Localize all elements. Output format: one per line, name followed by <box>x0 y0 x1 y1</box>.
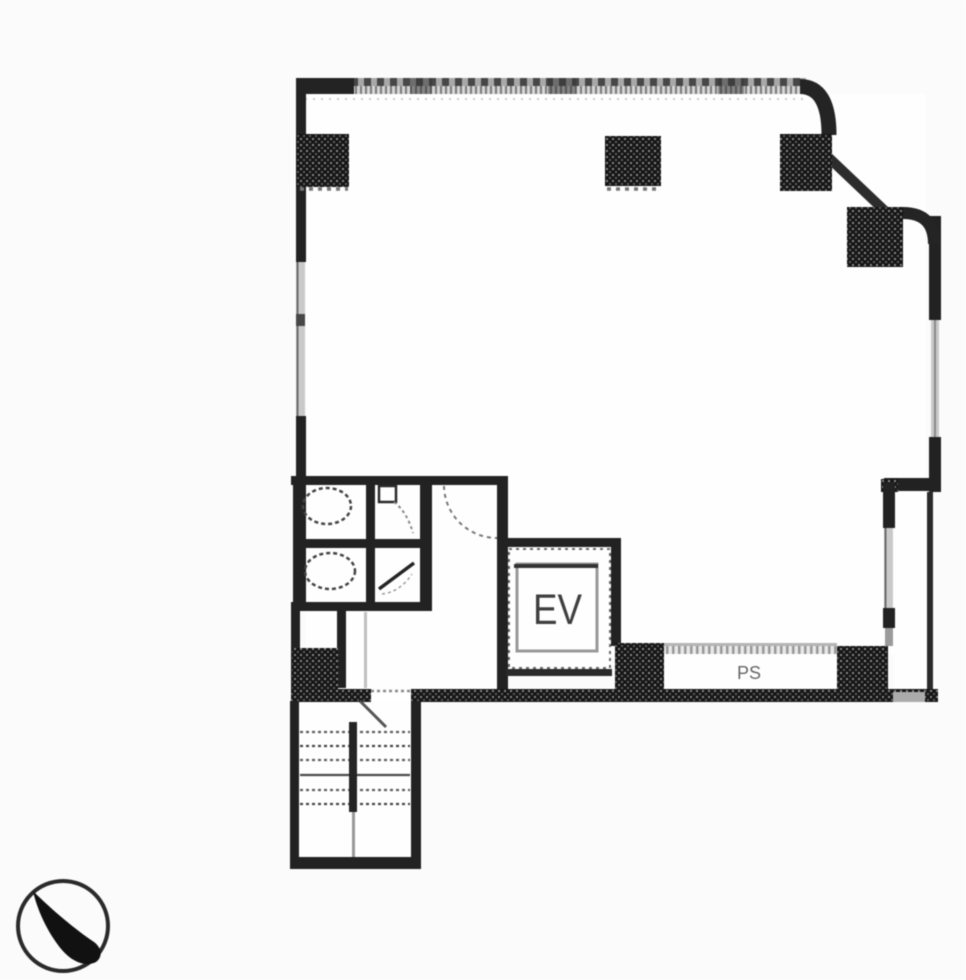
svg-text:PS: PS <box>737 663 761 683</box>
svg-text:EV: EV <box>533 586 582 634</box>
